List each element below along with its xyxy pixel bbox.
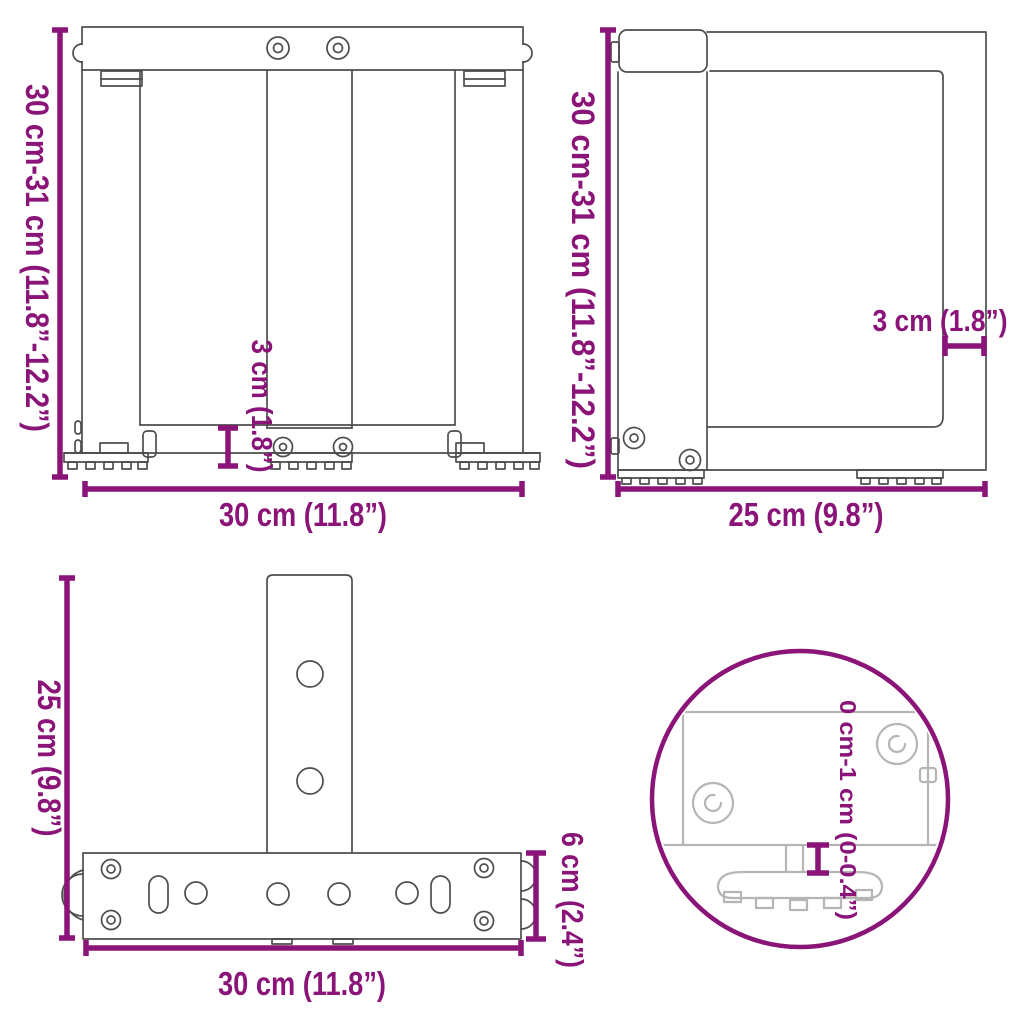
detail-screw-holes	[693, 724, 917, 823]
side-view: 30 cm-31 cm (11.8”-12.2”) 25 cm (9.8”) 3…	[565, 30, 1008, 533]
side-screw-holes	[624, 428, 701, 471]
front-plate-screw-holes	[267, 37, 349, 59]
product-dimension-diagram: 30 cm-31 cm (11.8”-12.2”) 30 cm (11.8”) …	[0, 0, 1024, 1024]
top-view: 25 cm (9.8”) 30 cm (11.8”) 6 cm (2.4”)	[31, 575, 590, 1002]
top-view-drawing	[62, 575, 536, 944]
front-bottom-bar	[64, 425, 540, 453]
top-depth-label: 25 cm (9.8”)	[31, 680, 67, 837]
detail-panel-corner	[660, 712, 952, 845]
front-plate-left-notch-gap	[79, 45, 85, 61]
front-view-drawing	[64, 27, 540, 469]
side-inner-contour	[707, 71, 943, 427]
front-view: 30 cm-31 cm (11.8”-12.2”) 30 cm (11.8”) …	[19, 27, 540, 533]
front-height-label: 30 cm-31 cm (11.8”-12.2”)	[19, 84, 55, 432]
detail-adjust-dimension-line	[807, 845, 829, 873]
front-top-plate	[82, 27, 523, 70]
front-leg-panels	[82, 70, 523, 453]
top-width-dimension-line	[86, 940, 521, 956]
top-stem-holes	[297, 661, 323, 794]
front-foot-dimension-line	[218, 428, 238, 466]
side-depth-dimension-line	[618, 481, 985, 497]
side-depth-label: 25 cm (9.8”)	[729, 496, 884, 533]
side-edge-tab-top	[611, 42, 619, 62]
top-stem	[267, 575, 352, 853]
detail-adjust-range-label: 0 cm-1 cm (0-0.4”)	[835, 700, 861, 920]
front-feet	[64, 443, 540, 469]
side-height-dimension-line	[600, 30, 616, 477]
front-plate-right-notch-gap	[520, 45, 526, 61]
side-feet-teeth	[622, 478, 941, 484]
top-bar-holes	[102, 859, 494, 931]
detail-foot-stem	[786, 845, 803, 872]
front-feet-teeth	[68, 462, 539, 469]
front-foot-height-label: 3 cm (1.8”)	[245, 340, 277, 473]
front-width-dimension-line	[85, 481, 522, 497]
side-view-drawing	[611, 30, 986, 484]
side-top-cap	[619, 30, 707, 72]
side-profile-width-label: 3 cm (1.8”)	[873, 303, 1008, 338]
front-width-label: 30 cm (11.8”)	[219, 496, 387, 533]
top-width-label: 30 cm (11.8”)	[218, 965, 386, 1002]
side-feet	[618, 470, 943, 484]
diagram-canvas: 30 cm-31 cm (11.8”-12.2”) 30 cm (11.8”) …	[0, 0, 1024, 1024]
top-bar-end-tabs	[62, 861, 536, 929]
detail-magnifier-circle	[652, 651, 948, 947]
side-height-label: 30 cm-31 cm (11.8”-12.2”)	[565, 91, 601, 469]
side-profile-dimension-line	[945, 336, 984, 356]
side-outer-profile	[618, 32, 986, 470]
detail-drawing	[660, 712, 952, 910]
top-bar-depth-label: 6 cm (2.4”)	[555, 832, 590, 968]
detail-view: 0 cm-1 cm (0-0.4”)	[652, 651, 952, 947]
front-top-brackets	[101, 71, 505, 86]
